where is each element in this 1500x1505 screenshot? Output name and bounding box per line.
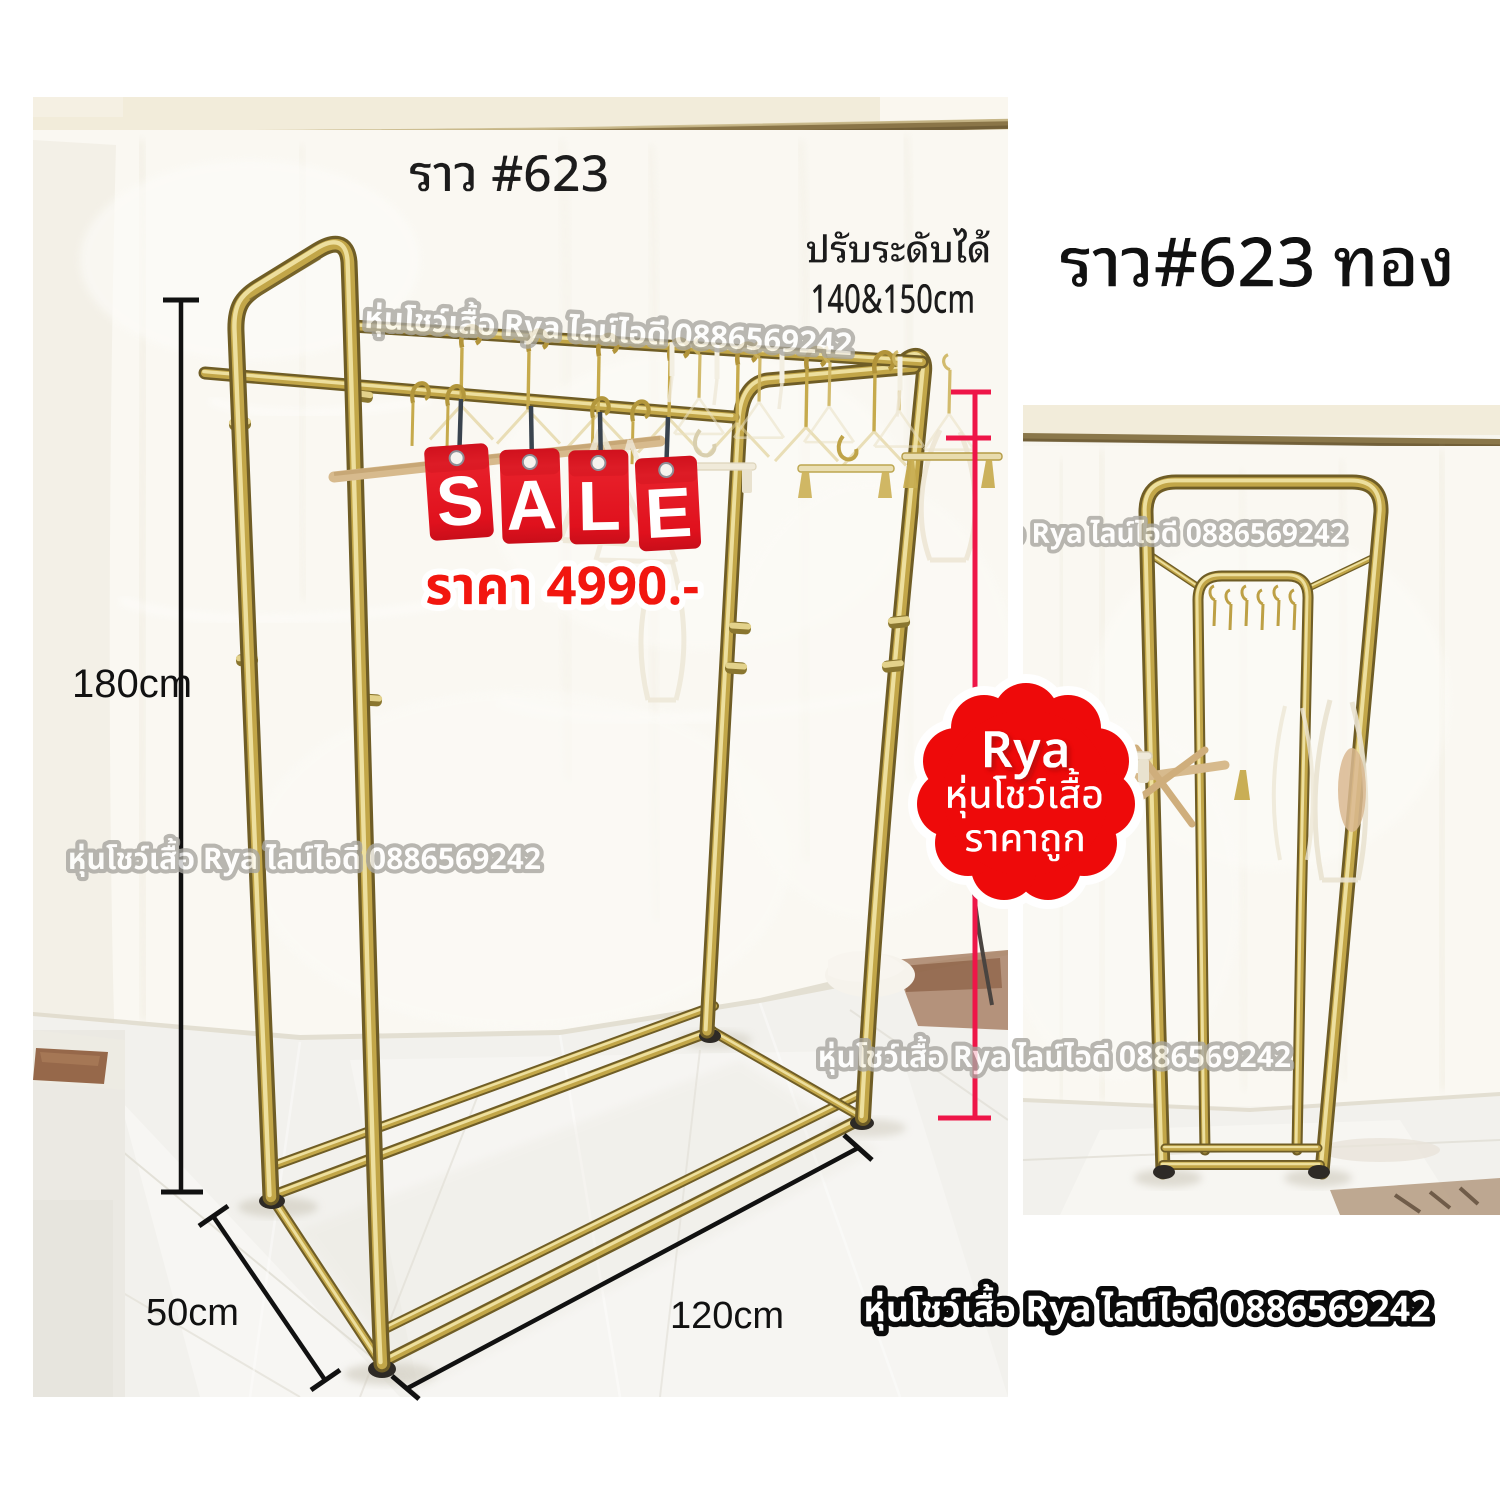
svg-text:L: L	[577, 467, 621, 546]
svg-text:50cm: 50cm	[146, 1292, 239, 1334]
svg-text:A: A	[505, 465, 558, 545]
svg-text:180cm: 180cm	[72, 662, 192, 706]
svg-text:E: E	[643, 473, 694, 553]
svg-text:120cm: 120cm	[670, 1295, 784, 1337]
svg-text:S: S	[434, 460, 486, 541]
